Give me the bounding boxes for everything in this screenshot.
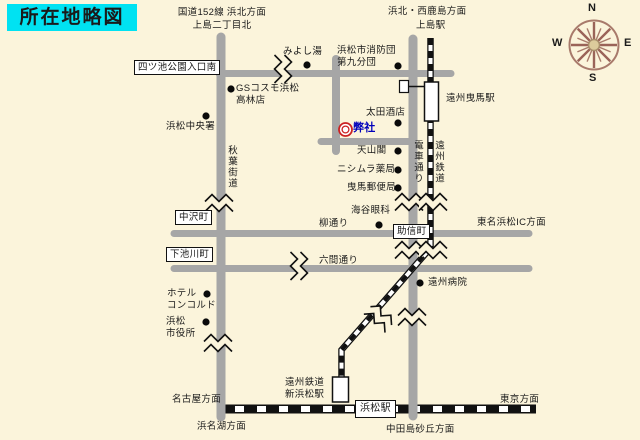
direction-tomei-ic: 東名浜松IC方面 [477,217,546,229]
compass-w: W [552,38,563,50]
direction-route152-north: 国道152線 浜北方面 [170,7,274,19]
shin-hamamatsu-station-rect [333,377,349,402]
poi-gs-cosmo: GSコスモ浜松 高林店 [236,83,299,106]
poi-dot-chuo-sho [202,112,209,119]
station-label-enshu-hikuma: 遠州曳馬駅 [446,93,495,105]
poi-dot-shiyakusho [202,318,209,325]
intersection-yotsuike: 四ツ池公園入口南 [134,60,220,75]
company-mark-icon [339,123,352,136]
poi-miyoshiyu: みよし湯 [283,46,322,58]
road-label-rokken-dori: 六間通り [319,255,358,267]
compass-e: E [624,38,632,50]
poi-shiyakusho: 浜松 市役所 [166,316,195,339]
poi-hotel-concorde: ホテル コンコルド [167,288,216,311]
poi-enshu-byoin: 遠州病院 [428,277,467,289]
poi-dot-enshu-byoin [416,279,423,286]
location-map: 所在地略図 国道152線 浜北方面 上島二丁目北 浜北・西鹿島方面 東名浜松IC… [0,0,640,440]
poi-kaiya-ganka: 海谷眼科 [351,205,390,217]
road-label-enshu-tetsudo: 遠州鉄道 [433,140,443,184]
poi-shobodan: 浜松市消防団 第九分団 [337,45,396,68]
road-label-akiha-kaido: 秋葉街道 [226,145,236,189]
direction-tokyo: 東京方面 [500,394,539,406]
compass-rose-icon [570,21,619,70]
station-label-kamijima: 上島駅 [416,20,445,32]
poi-chuo-sho: 浜松中央署 [166,121,215,133]
station-label-hamamatsu: 浜松駅 [355,400,396,418]
direction-kamijima2-north: 上島二丁目北 [170,20,274,32]
poi-company: 弊社 [353,123,376,135]
road-label-yanagi-dori: 柳通り [319,218,348,230]
intersection-nakazawa: 中沢町 [175,210,212,225]
road-label-densha-dori: 電車通り [412,140,422,184]
poi-hikuma-yubin: 曳馬郵便局 [347,182,396,194]
poi-dot-ota [394,119,401,126]
direction-nakatajima: 中田島砂丘方面 [386,424,455,436]
enshu-hikuma-station-rect [425,82,439,121]
direction-hamakita-nishikajima: 浜北・西鹿島方面 [388,6,466,18]
poi-dot-miyoshiyu [303,61,310,68]
poi-tenzankaku: 天山閣 [357,145,386,157]
poi-dot-gs-cosmo [227,85,234,92]
poi-dot-tenzankaku [394,147,401,154]
intersection-shimoikegawa: 下池川町 [166,247,213,262]
station-label-shin-hamamatsu: 遠州鉄道 新浜松駅 [285,377,324,400]
direction-nagoya: 名古屋方面 [172,394,221,406]
poi-dot-nishimura [394,166,401,173]
compass-n: N [588,3,596,15]
poi-nishimura: ニシムラ薬局 [337,164,395,176]
enshu-hikuma-station-annex [400,81,409,93]
intersection-sukenobu: 助信町 [393,224,430,239]
direction-hamanako: 浜名湖方面 [197,421,246,433]
poi-dot-kaiya [375,221,382,228]
poi-ota-saketen: 太田酒店 [366,107,405,119]
page-title: 所在地略図 [7,4,137,31]
compass-s: S [589,73,597,85]
